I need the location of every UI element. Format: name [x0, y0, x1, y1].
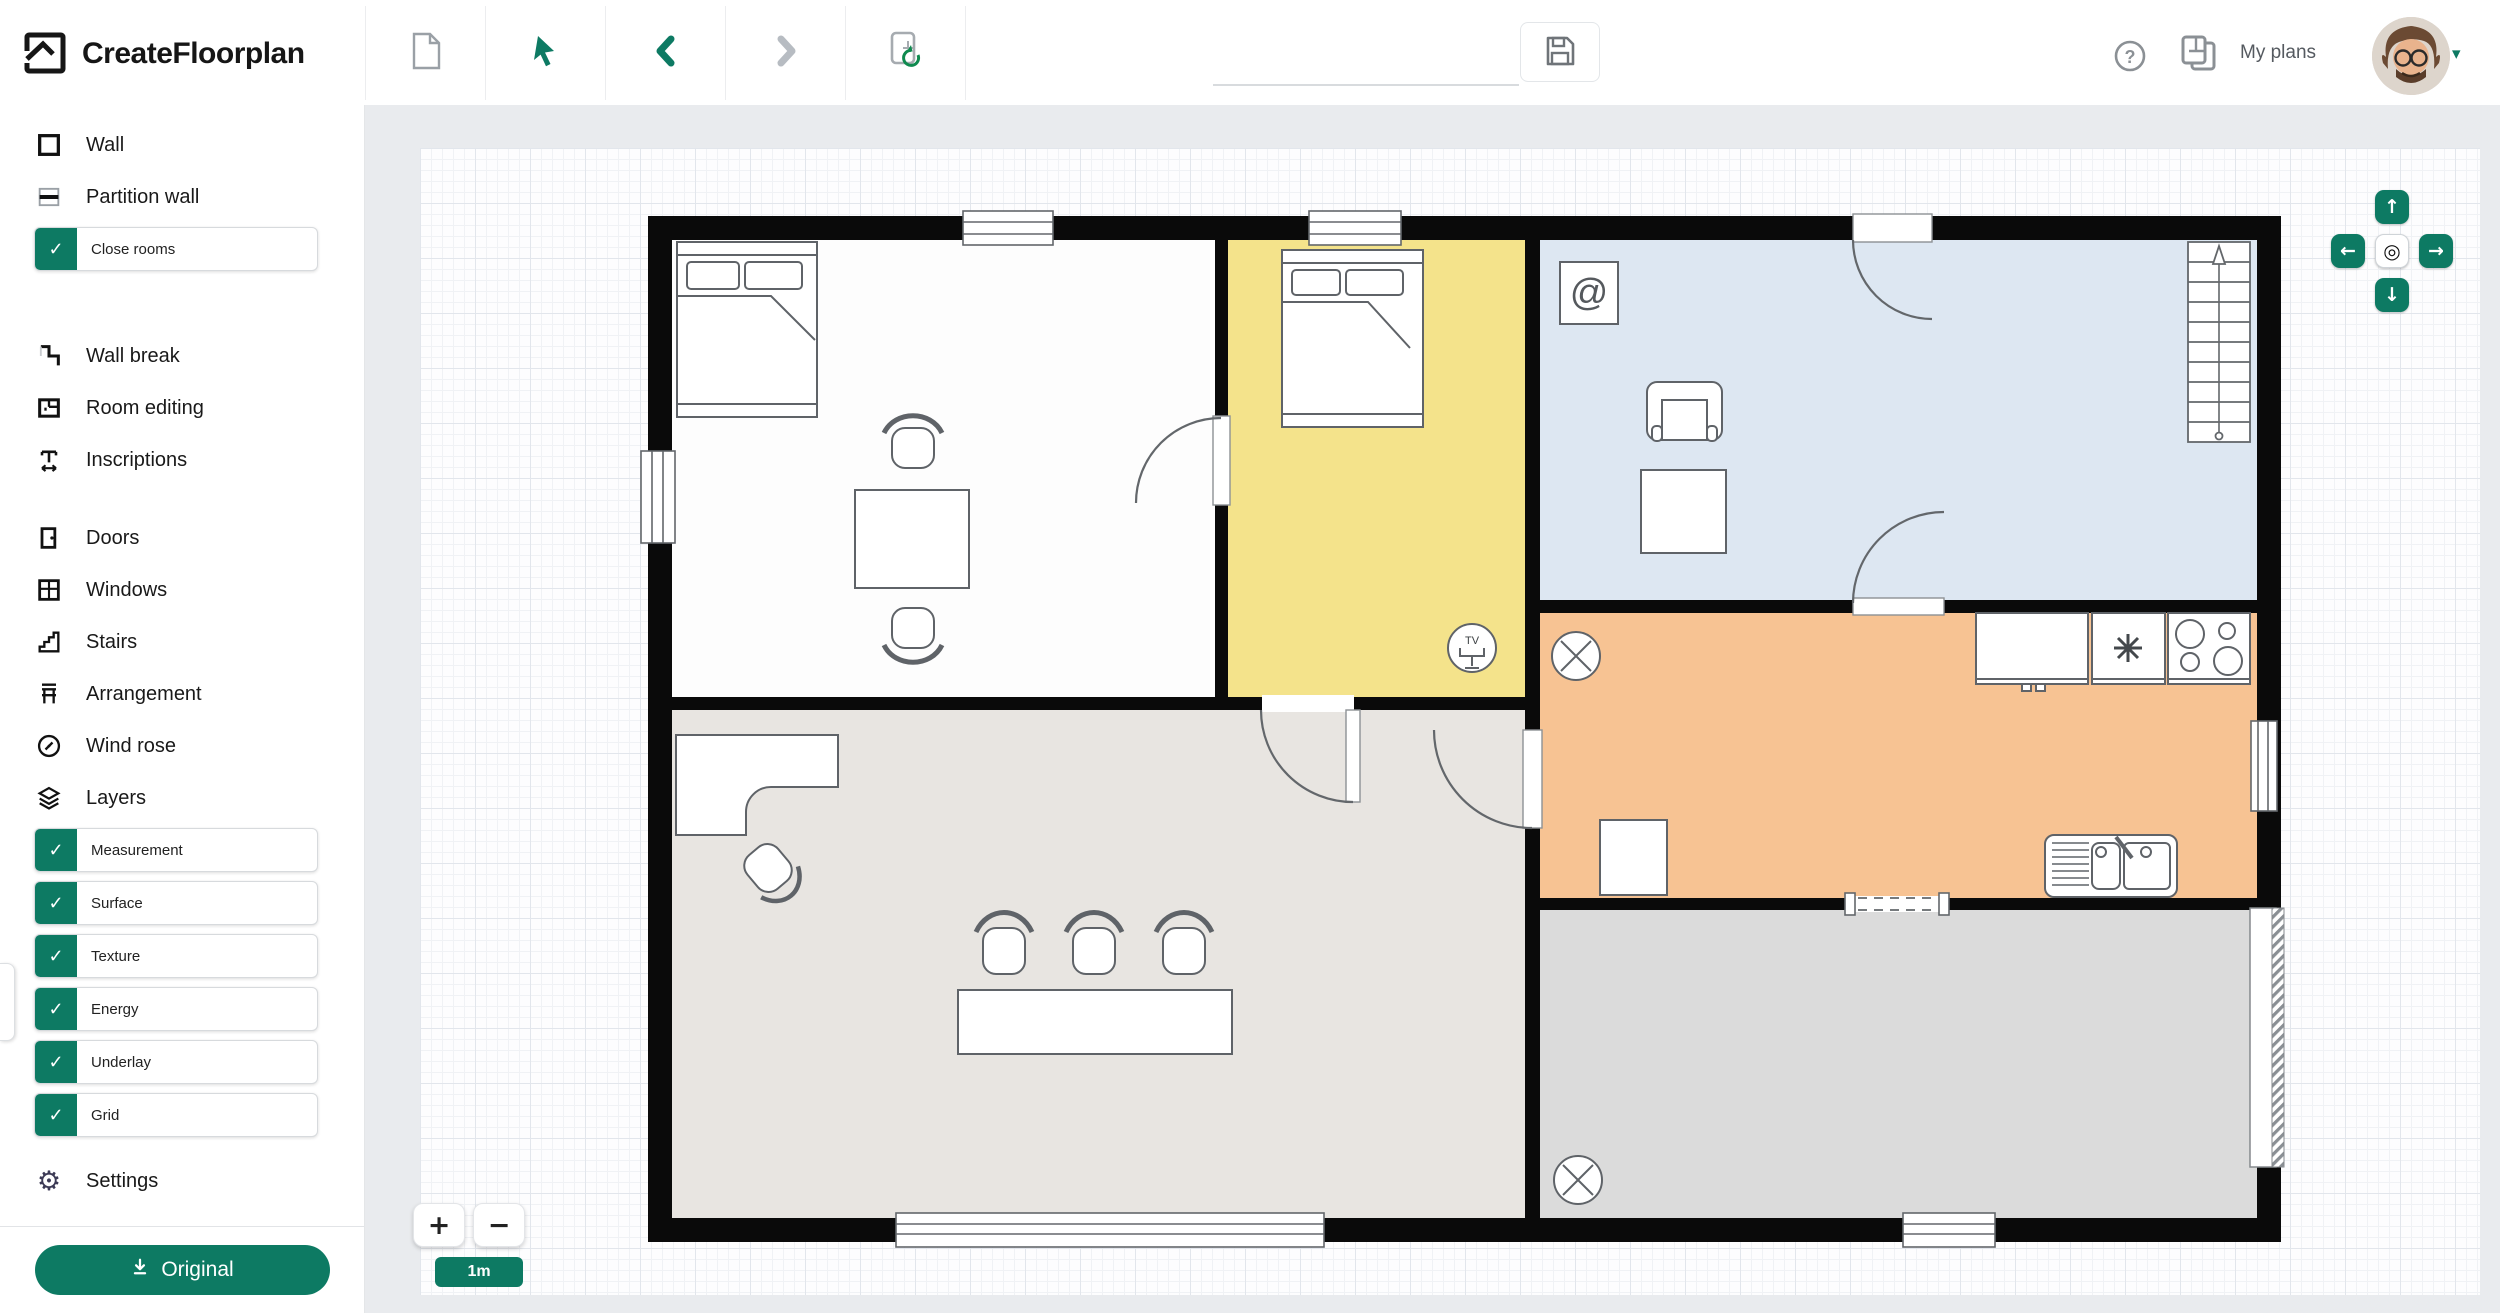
- partition-wall-icon: [34, 183, 64, 211]
- undo-icon: [651, 34, 681, 73]
- pan-left-button[interactable]: ←: [2331, 234, 2365, 268]
- scale-label: 1m: [467, 1263, 490, 1281]
- inscriptions-icon: [34, 446, 64, 474]
- minus-icon: −: [488, 1210, 511, 1241]
- gear-icon: ⚙: [34, 1168, 64, 1195]
- grid-paper[interactable]: [420, 148, 2480, 1295]
- sidebar-item-arrangement[interactable]: Arrangement: [0, 668, 364, 720]
- sidebar-item-wall[interactable]: Wall: [0, 119, 364, 171]
- checkmark-icon: ✓: [35, 829, 77, 871]
- sidebar-item-label: Arrangement: [86, 683, 202, 706]
- reload-plan-icon: [884, 29, 928, 78]
- collapsed-panel-handle[interactable]: [0, 963, 15, 1041]
- room-editing-icon: [34, 394, 64, 422]
- new-plan-icon: [408, 31, 444, 76]
- sidebar-item-room-editing[interactable]: Room editing: [0, 382, 364, 434]
- undo-button[interactable]: [605, 6, 725, 100]
- furniture-icon: [34, 680, 64, 708]
- floppy-disk-icon: [1543, 34, 1577, 71]
- download-icon: [131, 1258, 149, 1282]
- plus-icon: +: [428, 1210, 451, 1241]
- target-icon: ◎: [2383, 239, 2400, 263]
- layer-label: Texture: [77, 935, 140, 977]
- pan-down-button[interactable]: ↓: [2375, 278, 2409, 312]
- checkmark-icon: ✓: [35, 935, 77, 977]
- sidebar-item-wall-break[interactable]: Wall break: [0, 330, 364, 382]
- checkmark-icon: ✓: [35, 988, 77, 1030]
- sidebar-item-label: Windows: [86, 579, 167, 602]
- account-caret-icon[interactable]: ▾: [2452, 44, 2461, 64]
- pan-right-button[interactable]: →: [2419, 234, 2453, 268]
- reload-plan-button[interactable]: [845, 6, 966, 100]
- layer-label: Underlay: [77, 1041, 151, 1083]
- sidebar-item-label: Settings: [86, 1170, 158, 1193]
- layer-label: Grid: [77, 1094, 119, 1136]
- stairs-icon: [34, 628, 64, 656]
- topbar: CreateFloorplan: [0, 0, 2500, 105]
- scale-indicator: 1m: [435, 1257, 523, 1287]
- question-glyph: ?: [2125, 47, 2136, 67]
- checkmark-icon: ✓: [35, 882, 77, 924]
- door-icon: [34, 524, 64, 552]
- layer-grid-checkbox[interactable]: ✓ Grid: [34, 1093, 318, 1137]
- drawing-canvas[interactable]: [365, 105, 2500, 1313]
- sidebar-item-stairs[interactable]: Stairs: [0, 616, 364, 668]
- new-plan-button[interactable]: [365, 6, 485, 100]
- sidebar-divider: [0, 1226, 364, 1227]
- sidebar-item-label: Layers: [86, 787, 146, 810]
- sidebar-item-label: Doors: [86, 527, 139, 550]
- sidebar-item-settings[interactable]: ⚙ Settings: [0, 1155, 364, 1207]
- sidebar-item-partition-wall[interactable]: Partition wall: [0, 171, 364, 223]
- my-plans-label[interactable]: My plans: [2240, 42, 2316, 64]
- center-view-button[interactable]: ◎: [2375, 234, 2409, 268]
- window-icon: [34, 576, 64, 604]
- save-plan-button[interactable]: [1520, 22, 1600, 82]
- sidebar-item-inscriptions[interactable]: Inscriptions: [0, 434, 364, 486]
- layer-underlay-checkbox[interactable]: ✓ Underlay: [34, 1040, 318, 1084]
- logo-text: CreateFloorplan: [82, 37, 305, 71]
- checkmark-icon: ✓: [35, 1094, 77, 1136]
- sidebar-item-label: Partition wall: [86, 186, 199, 209]
- close-rooms-label: Close rooms: [77, 228, 175, 270]
- my-plans-icon[interactable]: [2176, 33, 2222, 82]
- layer-label: Measurement: [77, 829, 183, 871]
- compass-icon: [34, 732, 64, 760]
- pan-up-button[interactable]: ↑: [2375, 190, 2409, 224]
- sidebar-item-label: Wind rose: [86, 735, 176, 758]
- help-button[interactable]: ?: [2112, 38, 2148, 79]
- redo-button[interactable]: [725, 6, 845, 100]
- sidebar-item-label: Wall: [86, 134, 124, 157]
- layer-surface-checkbox[interactable]: ✓ Surface: [34, 881, 318, 925]
- sidebar-item-label: Inscriptions: [86, 449, 187, 472]
- layer-label: Surface: [77, 882, 143, 924]
- sidebar-item-doors[interactable]: Doors: [0, 512, 364, 564]
- arrow-right-icon: →: [2428, 240, 2444, 262]
- layer-energy-checkbox[interactable]: ✓ Energy: [34, 987, 318, 1031]
- redo-icon: [771, 34, 801, 73]
- layers-icon: [34, 784, 64, 812]
- zoom-in-button[interactable]: +: [413, 1203, 465, 1247]
- sidebar-item-windows[interactable]: Windows: [0, 564, 364, 616]
- layer-measurement-checkbox[interactable]: ✓ Measurement: [34, 828, 318, 872]
- logo-house-icon: [22, 26, 68, 81]
- close-rooms-checkbox[interactable]: ✓ Close rooms: [34, 227, 318, 271]
- arrow-up-icon: ↑: [2384, 196, 2400, 218]
- user-avatar[interactable]: [2372, 17, 2450, 95]
- download-original-button[interactable]: Original: [35, 1245, 330, 1295]
- pan-navigation-pad: ↑ ← ◎ → ↓: [2331, 190, 2453, 312]
- wall-icon: [34, 131, 64, 159]
- plan-name-input[interactable]: [1213, 34, 1519, 86]
- sidebar-item-layers[interactable]: Layers: [0, 772, 364, 824]
- select-cursor-icon: [529, 33, 563, 74]
- layer-label: Energy: [77, 988, 139, 1030]
- wall-break-icon: [34, 342, 64, 370]
- sidebar-item-label: Room editing: [86, 397, 204, 420]
- checkmark-icon: ✓: [35, 228, 77, 270]
- sidebar-item-label: Wall break: [86, 345, 180, 368]
- sidebar: Wall Partition wall ✓ Close rooms Wall b…: [0, 105, 365, 1313]
- sidebar-item-wind-rose[interactable]: Wind rose: [0, 720, 364, 772]
- layer-texture-checkbox[interactable]: ✓ Texture: [34, 934, 318, 978]
- sidebar-item-label: Stairs: [86, 631, 137, 654]
- select-tool-button[interactable]: [485, 6, 605, 100]
- app-logo[interactable]: CreateFloorplan: [22, 26, 305, 81]
- zoom-out-button[interactable]: −: [473, 1203, 525, 1247]
- arrow-down-icon: ↓: [2384, 284, 2400, 306]
- toolbar: [365, 6, 966, 100]
- arrow-left-icon: ←: [2340, 240, 2356, 262]
- download-original-label: Original: [161, 1258, 233, 1282]
- checkmark-icon: ✓: [35, 1041, 77, 1083]
